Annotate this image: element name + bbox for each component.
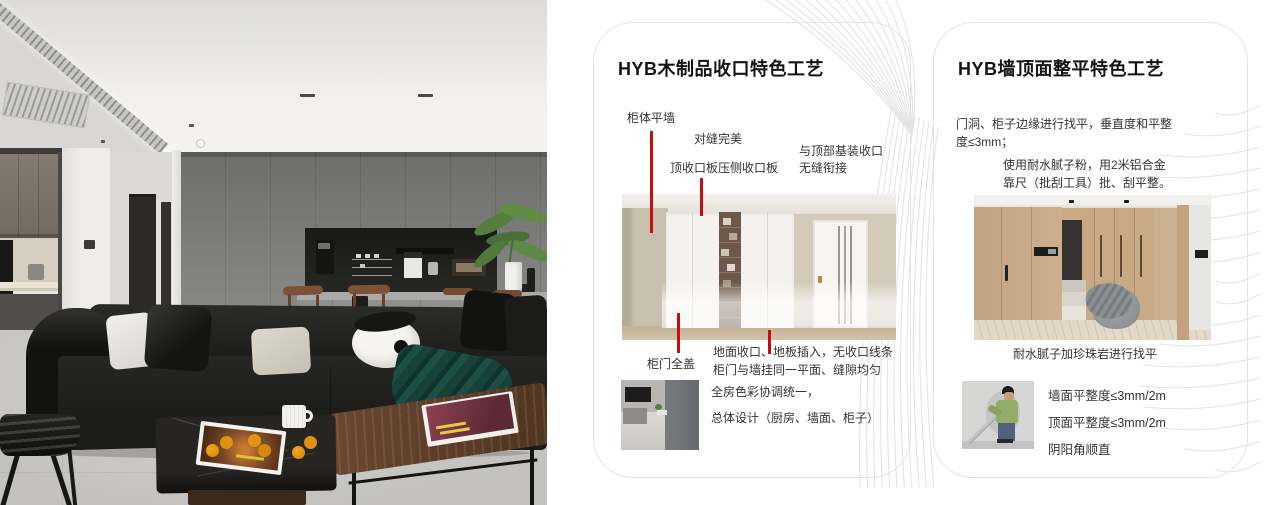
thumb-plant xyxy=(655,404,662,410)
wall-top-shadow xyxy=(180,152,547,157)
ceiling-spot xyxy=(101,140,105,143)
room-thumbnail-image xyxy=(621,380,699,450)
hanging-clothes xyxy=(1062,220,1082,280)
kitchen-upper-cabinets xyxy=(0,154,58,238)
callout-line: 与顶部基装收口 xyxy=(799,143,883,160)
control-screen xyxy=(1048,249,1056,254)
ceiling-vent-dash xyxy=(418,94,433,97)
callout-line: 地面收口、地板插入，无收口线条 xyxy=(713,343,893,361)
downlights xyxy=(1069,200,1074,203)
mug xyxy=(282,405,306,428)
leveling-paragraph-1: 门洞、柜子边缘进行找平，垂直度和平整 度≤3mm； xyxy=(956,115,1206,151)
light-reflection xyxy=(662,282,896,328)
thumb-gray-cabinet xyxy=(665,380,699,450)
callout-full-cover-door: 柜门全盖 xyxy=(647,355,695,372)
table-wood-base xyxy=(188,490,306,505)
para-line: 门洞、柜子边缘进行找平，垂直度和平整 xyxy=(956,115,1206,133)
wardrobe-render-image xyxy=(622,194,896,340)
spec-ceiling-flatness: 顶面平整度≤3mm/2m xyxy=(1048,412,1166,431)
ceiling-vent-dash xyxy=(300,94,315,97)
pillow-beige xyxy=(251,327,311,376)
spec-wall-flatness: 墙面平整度≤3mm/2m xyxy=(1048,385,1166,404)
callout-ceiling-joint: 与顶部基装收口 无缝衔接 xyxy=(799,143,883,177)
render-floor xyxy=(974,320,1211,340)
door-frame xyxy=(1177,205,1189,340)
cabinet-gap xyxy=(18,154,19,238)
cups xyxy=(356,254,361,258)
thumb-tv xyxy=(625,387,651,402)
worker-shoes xyxy=(997,439,1013,443)
thumb-counter xyxy=(657,410,667,415)
orange xyxy=(292,446,305,459)
ceiling-spot xyxy=(189,124,194,127)
stool-seat xyxy=(0,414,80,456)
kitchen-counter xyxy=(0,282,60,291)
thumb-sofa xyxy=(623,408,647,424)
hallway-door-dark xyxy=(161,202,171,310)
callout-line: 无缝衔接 xyxy=(799,160,883,177)
page: HYB木制品收口特色工艺 柜体平墙 对缝完美 顶收口板压侧收口板 与顶部基装收口… xyxy=(0,0,1280,505)
wardrobe-handles xyxy=(1100,235,1102,277)
callout-perfect-seam: 对缝完美 xyxy=(694,130,742,147)
card2-title: HYB墙顶面整平特色工艺 xyxy=(958,55,1164,81)
render-floor xyxy=(622,326,896,340)
para-line: 靠尺（批刮工具）批、刮平整。 xyxy=(1003,174,1223,192)
pillow-black-leather xyxy=(144,304,212,372)
leader-line xyxy=(700,178,703,216)
worker-thumbnail-image xyxy=(962,381,1034,449)
light-switch xyxy=(84,240,95,249)
smoke-detector xyxy=(196,139,205,148)
coffee-maker-white xyxy=(404,252,422,278)
para-line: 度≤3mm； xyxy=(956,133,1206,151)
sofa-pillow-black xyxy=(504,295,547,358)
orange xyxy=(206,444,219,457)
tile-line xyxy=(0,472,180,473)
machine-screen xyxy=(318,243,330,249)
wall-sign xyxy=(1195,250,1208,258)
table-leg-metal xyxy=(530,444,534,505)
shelf-items xyxy=(723,218,731,225)
card1-title: HYB木制品收口特色工艺 xyxy=(618,55,824,81)
small-appliance xyxy=(28,264,44,280)
callout-floor-closing: 地面收口、地板插入，无收口线条 柜门与墙挂同一平面、缝隙均匀 xyxy=(713,343,893,379)
black-appliance xyxy=(0,240,13,302)
shelves xyxy=(719,227,741,228)
hallway-door-dark xyxy=(129,194,156,312)
card-wall-leveling-craft: HYB墙顶面整平特色工艺 门洞、柜子边缘进行找平，垂直度和平整 度≤3mm； 使… xyxy=(933,22,1248,478)
door-handle xyxy=(1005,265,1008,281)
leader-line xyxy=(650,131,653,233)
drawer-unit xyxy=(1062,280,1086,320)
leader-line xyxy=(768,330,771,354)
card-woodwork-craft: HYB木制品收口特色工艺 柜体平墙 对缝完美 顶收口板压侧收口板 与顶部基装收口… xyxy=(593,22,911,478)
callout-top-closing-panel: 顶收口板压侧收口板 xyxy=(670,159,778,176)
render-caption: 耐水腻子加珍珠岩进行找平 xyxy=(1013,345,1157,362)
living-room-photo xyxy=(0,0,547,505)
leveling-paragraph-2: 使用耐水腻子粉，用2米铝合金 靠尺（批刮工具）批、刮平整。 xyxy=(1003,156,1223,192)
summary-line2: 总体设计（厨房、墙面、柜子） xyxy=(711,409,879,427)
callout-cabinet-flush-wall: 柜体平墙 xyxy=(627,109,675,126)
dark-bottle xyxy=(527,268,535,292)
kettle xyxy=(428,262,438,275)
callout-line: 柜门与墙挂同一平面、缝隙均匀 xyxy=(713,361,893,379)
bright-room-beyond xyxy=(1189,205,1211,330)
hallway-render-image xyxy=(974,195,1211,340)
summary-line1: 全房色彩协调统一， xyxy=(711,383,819,401)
spec-corners-straight: 阴阳角顺直 xyxy=(1048,439,1111,458)
leader-line xyxy=(677,313,680,353)
plant-pot xyxy=(505,262,522,292)
para-line: 使用耐水腻子粉，用2米铝合金 xyxy=(1003,156,1223,174)
